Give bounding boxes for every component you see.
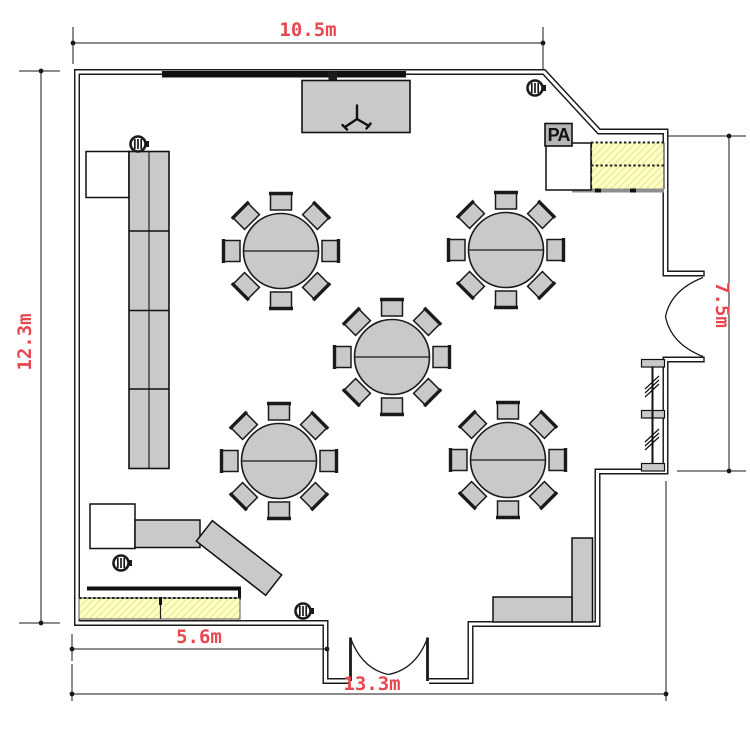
dim-label-bottom-outer: 13.3m xyxy=(343,673,400,695)
fire-extinguisher-icon xyxy=(114,556,133,571)
counter-back-band xyxy=(87,587,241,591)
projection-stand xyxy=(302,72,410,133)
pa-desk xyxy=(546,143,591,190)
chair xyxy=(451,448,468,472)
door-swing-arc xyxy=(389,638,428,675)
chair xyxy=(335,345,352,369)
round-tables-layer xyxy=(222,193,566,519)
chair xyxy=(222,449,239,473)
chair xyxy=(322,239,339,263)
pa-label: PA xyxy=(548,125,571,145)
chair xyxy=(496,403,520,420)
rail-tick xyxy=(595,189,601,193)
chair xyxy=(269,292,293,309)
angled-table xyxy=(196,521,281,596)
step-block xyxy=(493,597,572,622)
chair xyxy=(380,398,404,415)
chair xyxy=(224,239,241,263)
round-table xyxy=(335,300,450,415)
chair xyxy=(494,193,518,210)
corner-steps xyxy=(493,538,593,622)
chair xyxy=(269,194,293,211)
round-table xyxy=(451,403,566,518)
round-table xyxy=(224,194,339,309)
chair xyxy=(494,291,518,308)
fire-extinguisher-icon xyxy=(528,81,547,96)
chair xyxy=(380,300,404,317)
wall-screen-band xyxy=(162,71,406,78)
stand-mount xyxy=(329,72,338,81)
rail-tick xyxy=(630,189,636,193)
east-window xyxy=(642,360,665,472)
round-table xyxy=(449,193,564,308)
floor-plan-svg: PA xyxy=(0,0,750,750)
chair xyxy=(267,404,291,421)
dim-label-top: 10.5m xyxy=(279,19,336,41)
window-frame-bar xyxy=(642,360,665,368)
chair xyxy=(267,502,291,519)
fire-extinguisher-icon xyxy=(131,137,150,152)
counter-box xyxy=(86,152,129,198)
left-cabinet-run xyxy=(86,152,169,469)
chair xyxy=(547,238,564,262)
chair xyxy=(549,448,566,472)
chair xyxy=(433,345,450,369)
side-table xyxy=(135,520,200,548)
door-swing-arc xyxy=(666,317,704,357)
chair xyxy=(496,501,520,518)
door-swing-arc xyxy=(666,278,704,317)
door-swing-arc xyxy=(351,638,389,675)
chair xyxy=(449,238,466,262)
dim-label-right: 7.5m xyxy=(711,282,733,328)
buffet-counter-south xyxy=(79,587,241,620)
fire-extinguisher-icon xyxy=(296,604,315,619)
dim-label-bottom-inner: 5.6m xyxy=(176,626,222,648)
dim-label-left: 12.3m xyxy=(14,313,36,370)
east-double-door xyxy=(666,278,704,357)
round-table xyxy=(222,404,337,519)
service-counter-group xyxy=(90,504,282,595)
chair xyxy=(320,449,337,473)
counter-box xyxy=(90,504,135,549)
window-frame-bar xyxy=(642,464,665,472)
floor-plan-canvas: PA xyxy=(0,0,750,750)
step-block xyxy=(572,538,593,622)
